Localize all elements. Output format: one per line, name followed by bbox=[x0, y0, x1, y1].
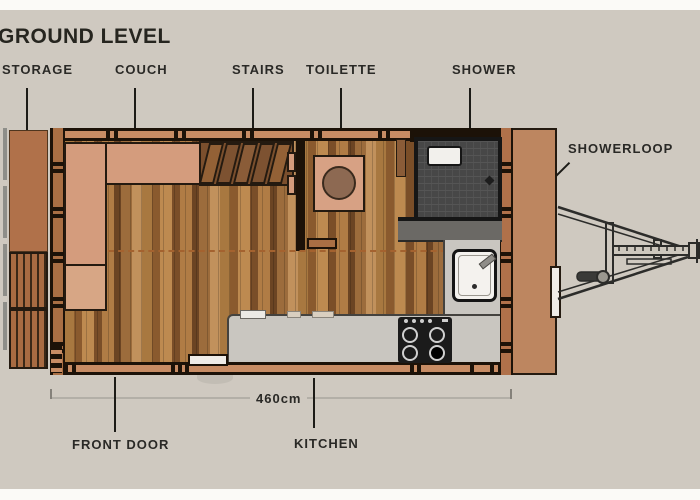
burner-icon bbox=[429, 345, 445, 361]
wall-stud bbox=[417, 362, 421, 375]
label-storage: STORAGE bbox=[2, 62, 73, 77]
wall-shelf-block bbox=[287, 175, 296, 195]
couch-end-section bbox=[64, 264, 107, 311]
stove-display bbox=[442, 319, 448, 322]
label-shower: SHOWER bbox=[452, 62, 517, 77]
side-rail bbox=[3, 128, 7, 350]
burner-icon bbox=[429, 327, 445, 343]
stairs-partition-wall bbox=[296, 139, 305, 251]
storage-slats-lower bbox=[9, 309, 48, 369]
page-title: GROUND LEVEL bbox=[0, 25, 171, 49]
door-frame-stud bbox=[64, 362, 68, 375]
floorplan-canvas: GROUND LEVEL STORAGE COUCH STAIRS TOILET… bbox=[0, 0, 700, 500]
storage-slats-upper bbox=[9, 252, 48, 309]
top-margin-band bbox=[0, 0, 700, 10]
counter-item bbox=[312, 311, 334, 318]
burner-icon bbox=[402, 345, 418, 361]
wall-stud bbox=[490, 362, 494, 375]
dimension-tick-right bbox=[510, 389, 512, 399]
wall-stud bbox=[410, 362, 414, 375]
kitchen-leader-line bbox=[313, 378, 315, 428]
bottom-margin-band bbox=[0, 489, 700, 500]
stove-knob-icon bbox=[420, 319, 424, 323]
kitchen-counter-bottom bbox=[227, 314, 500, 362]
stairs bbox=[199, 141, 294, 186]
couch-top-section bbox=[105, 142, 201, 185]
burner-icon bbox=[402, 327, 418, 343]
label-front-door: FRONT DOOR bbox=[72, 437, 169, 452]
front-door-leader-line bbox=[114, 377, 116, 432]
wall-stud bbox=[470, 362, 474, 375]
stove-knob-icon bbox=[412, 319, 416, 323]
door-frame-stud bbox=[72, 362, 76, 375]
label-kitchen: KITCHEN bbox=[294, 436, 359, 451]
stove-knob-icon bbox=[404, 319, 408, 323]
label-stairs: STAIRS bbox=[232, 62, 285, 77]
label-toilette: TOILETTE bbox=[306, 62, 377, 77]
door-frame-stud bbox=[178, 362, 182, 375]
wall-shelf-block bbox=[287, 152, 296, 172]
door-frame-stud bbox=[171, 362, 175, 375]
bottom-wall bbox=[50, 362, 500, 375]
dimension-label: 460cm bbox=[250, 391, 307, 406]
door-corner-studs bbox=[51, 345, 62, 373]
entry-step bbox=[197, 375, 233, 384]
shower-wall-stub bbox=[396, 139, 406, 177]
stove-knob-icon bbox=[428, 319, 432, 323]
rear-deck bbox=[513, 128, 557, 375]
dimension-tick-left bbox=[50, 389, 52, 399]
sink-drain-icon bbox=[472, 284, 477, 289]
couch-left-section bbox=[64, 142, 107, 266]
counter-item bbox=[287, 311, 301, 318]
toilet-circle bbox=[322, 166, 356, 200]
label-couch: COUCH bbox=[115, 62, 168, 77]
label-showerloop: SHOWERLOOP bbox=[568, 141, 673, 156]
entry-bench bbox=[188, 354, 228, 366]
trailer-hitch bbox=[555, 193, 700, 303]
toilette-bench bbox=[307, 238, 337, 249]
storage-box-lid bbox=[9, 130, 48, 252]
sink bbox=[452, 249, 497, 302]
shower-shelf bbox=[427, 146, 462, 166]
stove bbox=[398, 317, 452, 363]
loft-outline-dashed bbox=[108, 250, 497, 252]
showerloop-unit bbox=[398, 217, 502, 242]
counter-board bbox=[240, 310, 266, 319]
left-wall bbox=[50, 128, 65, 375]
